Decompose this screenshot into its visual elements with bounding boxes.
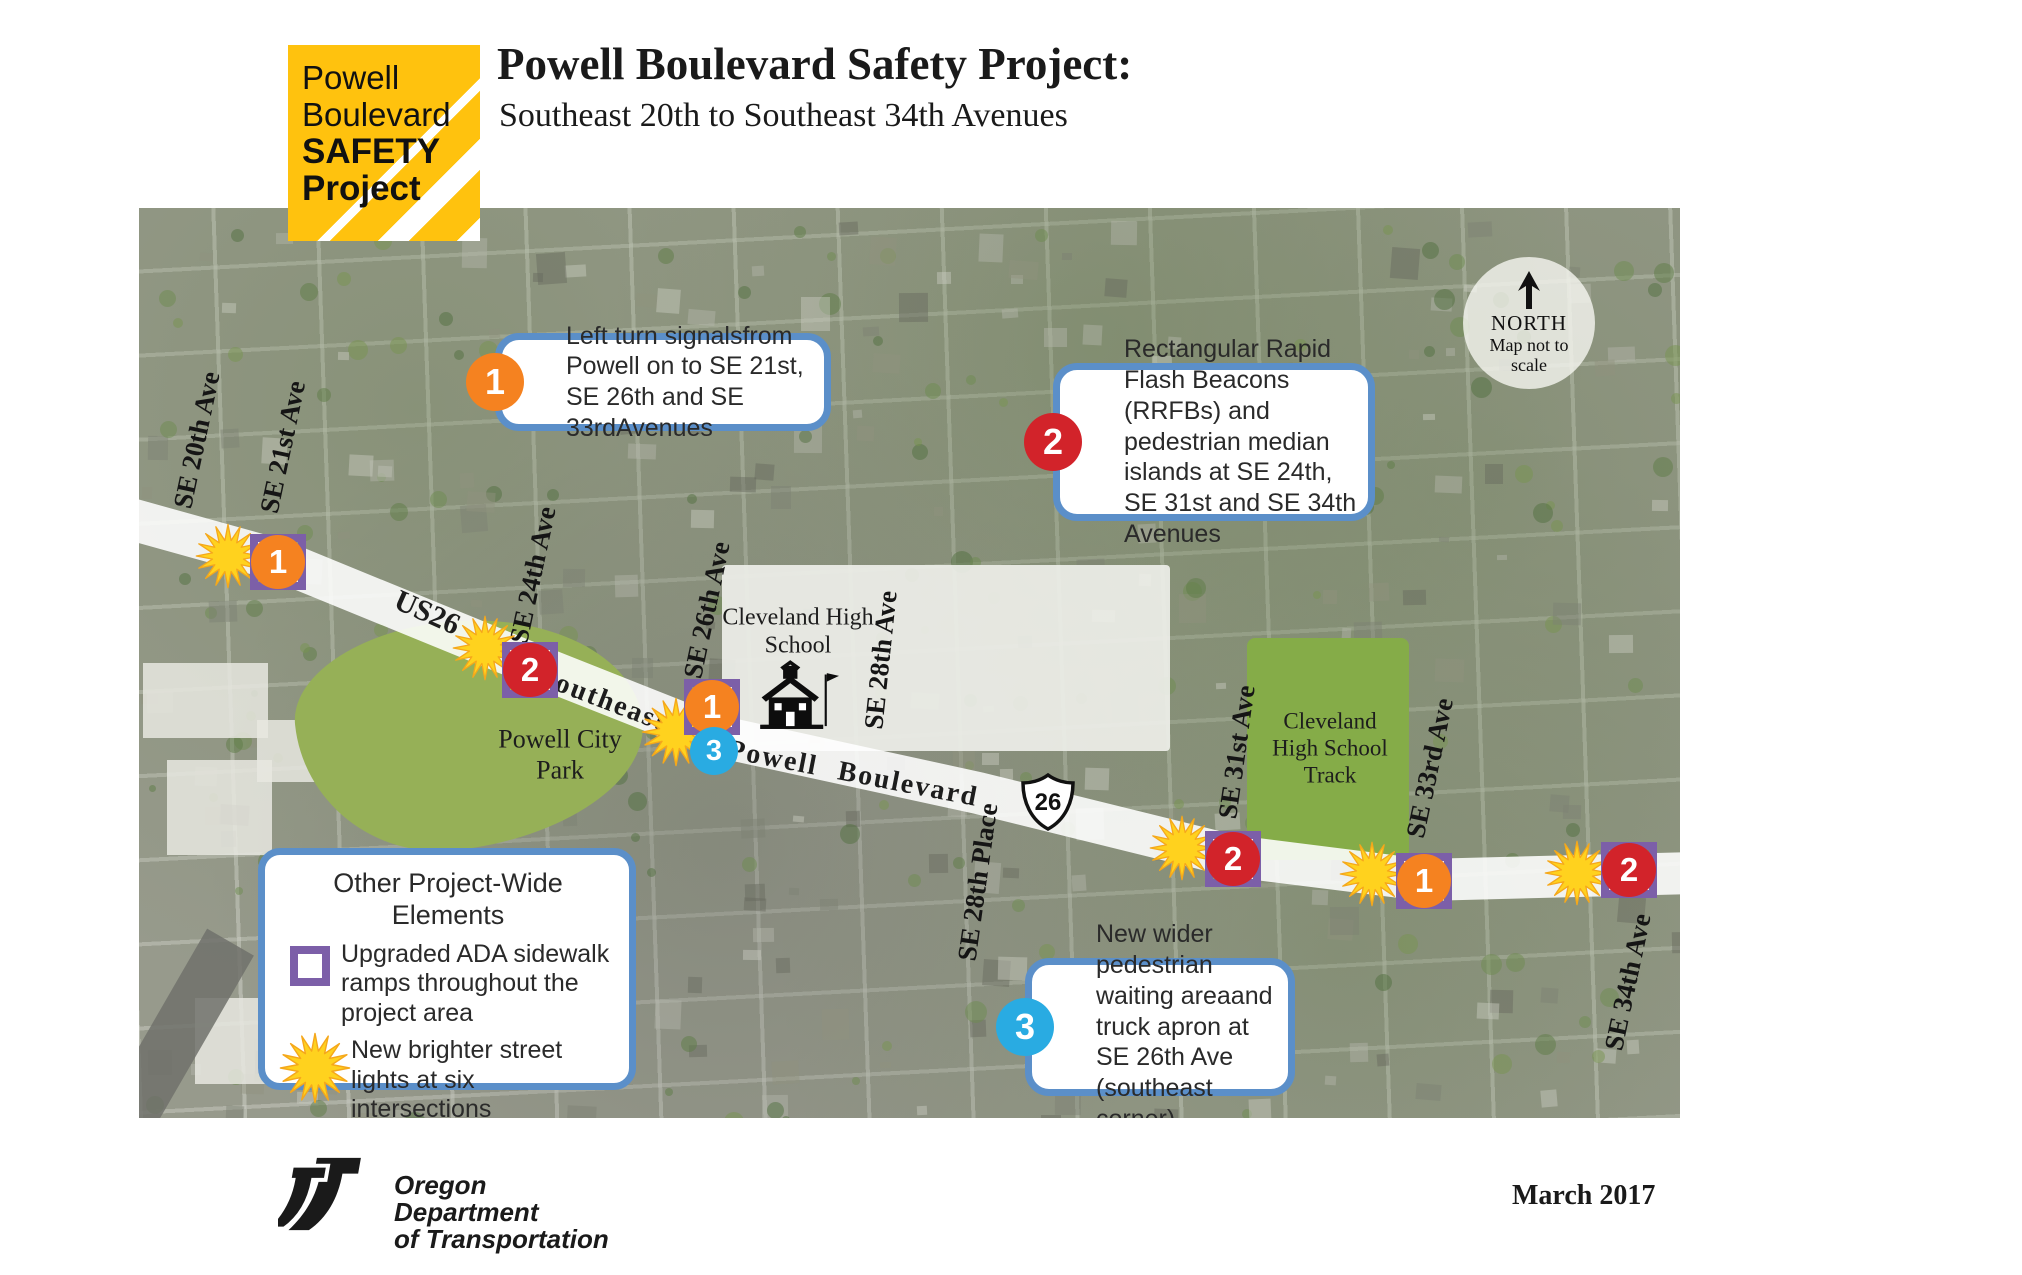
street-label: SE 28th Place (952, 801, 1005, 963)
map-tree (1035, 229, 1048, 242)
map-building (1540, 1089, 1557, 1107)
map-building (1071, 875, 1086, 892)
map-building (1423, 414, 1435, 420)
map-tree (231, 229, 244, 242)
map-building (1369, 583, 1390, 602)
map-tree (1449, 254, 1465, 270)
map-tree (647, 868, 656, 877)
map-building (142, 487, 152, 499)
page-title: Powell Boulevard Safety Project: (497, 38, 1132, 90)
map-tree (430, 491, 447, 508)
map-tree (300, 643, 310, 653)
map-tree (1551, 520, 1563, 532)
odot-line: Department (394, 1199, 609, 1226)
map-tree (742, 857, 757, 872)
map-building (820, 899, 838, 910)
map-building (857, 426, 875, 442)
map-building (998, 957, 1028, 981)
map-building (654, 999, 681, 1029)
legend-item-text: New brighter street lights at six inters… (351, 1036, 617, 1118)
callout-2-badge: 2 (1024, 413, 1082, 471)
map-building (1041, 1115, 1061, 1118)
map-tree (882, 1041, 892, 1051)
map-building (1403, 590, 1426, 606)
map-building (563, 569, 585, 587)
map-tree (439, 312, 453, 326)
map-tree (159, 290, 176, 307)
place-label-cleveland-high-school: Cleveland High School (703, 604, 893, 661)
map-building (1672, 932, 1680, 953)
map-tree (1515, 465, 1533, 483)
map-building (1044, 328, 1067, 347)
map-building (466, 491, 495, 513)
map-building (1446, 348, 1455, 356)
map-tree (953, 857, 965, 869)
map-tree (1471, 377, 1492, 398)
marker-2-se31st: 2 (1206, 832, 1260, 886)
map-tree (1665, 345, 1680, 366)
map-building (688, 977, 702, 993)
marker-1-se33rd: 1 (1397, 854, 1451, 908)
map-tree (300, 283, 318, 301)
map-tree (908, 874, 921, 887)
map-building (460, 504, 488, 533)
street-light-starburst-icon (279, 1032, 351, 1104)
map-tree (966, 375, 976, 385)
map-building (1350, 1043, 1369, 1062)
map-building (880, 1062, 891, 1069)
map-building (1323, 590, 1337, 604)
map-tree (390, 337, 407, 354)
callout-pedestrian-waiting-area: 3 New wider pedestrian waiting areaand t… (1025, 958, 1295, 1096)
map-building (1003, 868, 1019, 879)
map-tree (1424, 346, 1435, 357)
map-tree (1183, 582, 1202, 601)
map-building (929, 854, 948, 873)
map-building (982, 753, 999, 765)
map-building (1608, 347, 1636, 363)
map-building (937, 272, 951, 284)
map-building (839, 221, 859, 235)
map-tree (173, 318, 183, 328)
legend-item-ada-ramps: Upgraded ADA sidewalk ramps throughout t… (279, 940, 617, 1029)
map-tree (767, 1102, 784, 1118)
map-tree (658, 248, 674, 264)
callout-1-text: Left turn signalsfrom Powell on to SE 21… (566, 348, 814, 416)
map-tree (454, 350, 464, 360)
map-tree (827, 252, 836, 261)
map-building (869, 236, 897, 266)
map-tree (246, 600, 263, 617)
map-tree (1654, 263, 1674, 283)
north-label: NORTH (1491, 311, 1567, 336)
map-building (1609, 635, 1633, 653)
map-building (338, 352, 349, 360)
publication-date: March 2017 (1512, 1180, 1655, 1212)
map-building (536, 252, 567, 285)
map-scale-note: Map not to scale (1481, 336, 1577, 376)
street-label: SE 33rd Ave (1400, 695, 1460, 840)
map-building (1490, 990, 1514, 1014)
map-building (1377, 1054, 1390, 1067)
map-building (970, 1020, 987, 1038)
map-tree (687, 494, 697, 504)
map-building (789, 888, 799, 895)
map-tree (337, 272, 351, 286)
map-building (1327, 918, 1354, 941)
map-tree (1653, 457, 1673, 477)
marker-3-se26th: 3 (690, 727, 738, 775)
map-building (953, 748, 976, 775)
marker-1-se26th: 1 (685, 680, 739, 734)
map-building (1435, 475, 1463, 493)
map-tree (1533, 503, 1553, 523)
map-tree (1535, 1034, 1556, 1055)
map-building (1008, 260, 1038, 280)
map-building (1390, 247, 1420, 280)
place-label-cleveland-hs-track: Cleveland High School Track (1265, 707, 1395, 788)
map-building (462, 238, 487, 268)
map-tree (317, 388, 331, 402)
map-building (1415, 1083, 1441, 1101)
map-building (899, 293, 928, 322)
us-26-route-shield-icon: 26 (1019, 772, 1077, 832)
map-building (632, 658, 653, 678)
map-building (1485, 464, 1503, 484)
map-tree (1383, 225, 1393, 235)
map-building (771, 486, 791, 509)
map-building (1085, 768, 1110, 791)
map-building (1330, 907, 1359, 935)
map-tree (1671, 393, 1680, 404)
map-tree (235, 887, 243, 895)
svg-text:26: 26 (1035, 789, 1062, 816)
map-building (628, 443, 657, 459)
map-tree (999, 398, 1008, 407)
map-building (1563, 805, 1581, 819)
map-tree (1174, 799, 1184, 809)
map-tree (873, 336, 883, 346)
map-building (378, 466, 393, 478)
map-building (1011, 275, 1023, 284)
legend-item-street-lights: New brighter street lights at six inters… (279, 1036, 617, 1118)
map-building (1409, 350, 1419, 359)
odot-agency-name: Oregon Department of Transportation (394, 1172, 609, 1253)
map-tree (1434, 289, 1455, 310)
map-building (489, 329, 501, 339)
map-building (1312, 890, 1329, 906)
map-tree (228, 347, 243, 362)
map-tree (303, 647, 317, 661)
map-building (730, 477, 756, 493)
map-building (1497, 555, 1507, 560)
map-building (982, 959, 1011, 987)
map-building (148, 436, 168, 460)
map-building (689, 1045, 707, 1057)
project-logo: Powell Boulevard SAFETY Project (288, 45, 480, 241)
odot-line: Oregon (394, 1172, 609, 1199)
logo-line: Boulevard (302, 96, 480, 133)
map-tree (1628, 678, 1643, 693)
schoolhouse-icon (753, 660, 839, 732)
map-tree (348, 340, 368, 360)
map-building (863, 327, 879, 337)
street-label: SE 24th Ave (503, 504, 562, 646)
map-tree (179, 573, 191, 585)
map-building (743, 950, 761, 960)
map-tree (794, 226, 806, 238)
map-building (1557, 1052, 1570, 1063)
map-tree (1186, 578, 1206, 598)
map-building (1595, 359, 1616, 376)
map-building (934, 507, 943, 516)
map-tree (1012, 899, 1025, 912)
map-building (1153, 827, 1184, 861)
map-building (209, 600, 238, 622)
map-building (1104, 278, 1127, 298)
map-building (1596, 1048, 1617, 1063)
callout-3-badge: 3 (996, 998, 1054, 1056)
map-tree (377, 473, 386, 482)
map-building (744, 897, 767, 911)
map-building (220, 428, 239, 448)
map-building (762, 1095, 788, 1118)
map-building (1179, 594, 1206, 623)
map-building (1000, 769, 1013, 780)
north-compass-badge: NORTH Map not to scale (1463, 257, 1595, 389)
industrial-block (143, 663, 268, 738)
map-building (691, 510, 714, 529)
map-tree (1505, 853, 1520, 868)
map-building (752, 266, 765, 277)
map-tree (879, 800, 889, 810)
map-building (348, 454, 373, 476)
map-building (1553, 603, 1581, 626)
aerial-map: SE 20th Ave SE 21st Ave SE 24th Ave SE 2… (139, 208, 1680, 1118)
map-tree (852, 1077, 860, 1085)
map-tree (681, 1036, 697, 1052)
north-arrow-icon (1516, 271, 1542, 309)
legend-item-text: Upgraded ADA sidewalk ramps throughout t… (341, 940, 617, 1029)
map-tree (1387, 461, 1395, 469)
map-building (338, 532, 350, 540)
map-tree (226, 736, 243, 753)
map-building (1216, 683, 1226, 689)
map-building (741, 818, 766, 838)
map-building (1477, 1003, 1500, 1020)
map-tree (1579, 1016, 1591, 1028)
map-building (460, 473, 475, 489)
map-building (1111, 221, 1137, 245)
callout-rrfb-median-islands: 2 Rectangular Rapid Flash Beacons (RRFBs… (1053, 363, 1375, 521)
map-building (978, 233, 1003, 262)
map-building (635, 293, 658, 308)
map-building (776, 958, 791, 973)
map-tree (160, 421, 177, 438)
map-tree (1422, 242, 1439, 259)
map-tree (724, 1112, 744, 1118)
map-building (226, 1106, 245, 1118)
map-tree (782, 1116, 790, 1118)
map-building (370, 460, 395, 482)
map-building (656, 288, 681, 314)
map-tree (965, 761, 974, 770)
map-tree (1648, 283, 1662, 297)
map-tree (1481, 954, 1502, 975)
map-building (846, 811, 861, 827)
map-building (822, 1009, 850, 1041)
map-tree (205, 607, 217, 619)
map-building (745, 884, 766, 902)
map-tree (914, 438, 922, 446)
logo-line: SAFETY (302, 133, 480, 170)
map-tree (390, 503, 408, 521)
map-building (1076, 808, 1105, 841)
logo-line: Powell (302, 59, 480, 96)
map-building (1082, 325, 1102, 346)
map-building (853, 410, 863, 419)
map-tree (486, 486, 502, 502)
map-building (1147, 809, 1176, 833)
map-building (533, 273, 543, 282)
map-tree (631, 833, 640, 842)
map-tree (738, 286, 751, 299)
callout-3-text: New wider pedestrian waiting areaand tru… (1096, 973, 1278, 1081)
map-tree (547, 489, 559, 501)
map-tree (1492, 1054, 1512, 1074)
map-building (565, 264, 587, 277)
map-building (471, 600, 482, 608)
map-building (753, 928, 774, 942)
map-tree (1398, 934, 1418, 954)
page-subtitle: Southeast 20th to Southeast 34th Avenues (499, 97, 1068, 135)
map-building (1439, 537, 1449, 542)
map-tree (1614, 261, 1634, 281)
marker-2-se24th: 2 (503, 643, 557, 697)
map-building (1540, 987, 1558, 1003)
map-building (200, 253, 213, 261)
map-tree (1566, 823, 1580, 837)
map-building (1002, 308, 1019, 318)
map-building (1435, 659, 1465, 683)
marker-2-se34th: 2 (1602, 843, 1656, 897)
map-building (917, 1106, 927, 1116)
map-tree (1546, 501, 1555, 510)
odot-logo: Oregon Department of Transportation (278, 1138, 609, 1253)
map-tree (1506, 953, 1525, 972)
map-tree (149, 785, 156, 792)
callout-2-text: Rectangular Rapid Flash Beacons (RRFBs) … (1124, 378, 1358, 506)
street-label: SE 21st Ave (254, 378, 312, 516)
ada-square-icon (290, 946, 330, 986)
map-tree (880, 248, 896, 264)
map-tree (840, 824, 860, 844)
map-building (754, 463, 774, 480)
street-label: SE 20th Ave (167, 369, 226, 511)
map-tree (1375, 974, 1392, 991)
map-tree (1545, 616, 1562, 633)
street-label: SE 34th Ave (1598, 911, 1657, 1053)
callout-1-badge: 1 (466, 353, 524, 411)
map-tree (819, 293, 841, 315)
map-tree (1592, 1050, 1605, 1063)
map-tree (1313, 591, 1321, 599)
legend-title: Other Project-Wide Elements (309, 867, 587, 932)
map-building (1652, 500, 1668, 511)
place-label-powell-city-park: Powell City Park (485, 724, 635, 785)
map-building (1062, 253, 1072, 260)
map-tree (912, 444, 928, 460)
map-building (793, 816, 804, 823)
legend-other-project-wide-elements: Other Project-Wide Elements Upgraded ADA… (258, 848, 636, 1090)
map-building (872, 353, 900, 374)
map-building (1549, 794, 1569, 812)
marker-1-se21st: 1 (251, 535, 305, 589)
logo-line: Project (302, 170, 480, 207)
map-building (615, 575, 639, 598)
map-tree (965, 1001, 987, 1023)
map-tree (628, 792, 647, 811)
map-building (1431, 297, 1453, 311)
odot-logo-mark (278, 1138, 388, 1250)
map-building (222, 303, 236, 313)
map-tree (925, 383, 941, 399)
poster-page: Powell Boulevard SAFETY Project Powell B… (0, 0, 2022, 1275)
map-building (1325, 1076, 1337, 1086)
odot-line: of Transportation (394, 1226, 609, 1253)
map-tree (665, 1088, 673, 1096)
map-building (771, 1060, 799, 1085)
callout-left-turn-signals: 1 Left turn signalsfrom Powell on to SE … (495, 333, 831, 431)
map-building (1468, 221, 1493, 237)
